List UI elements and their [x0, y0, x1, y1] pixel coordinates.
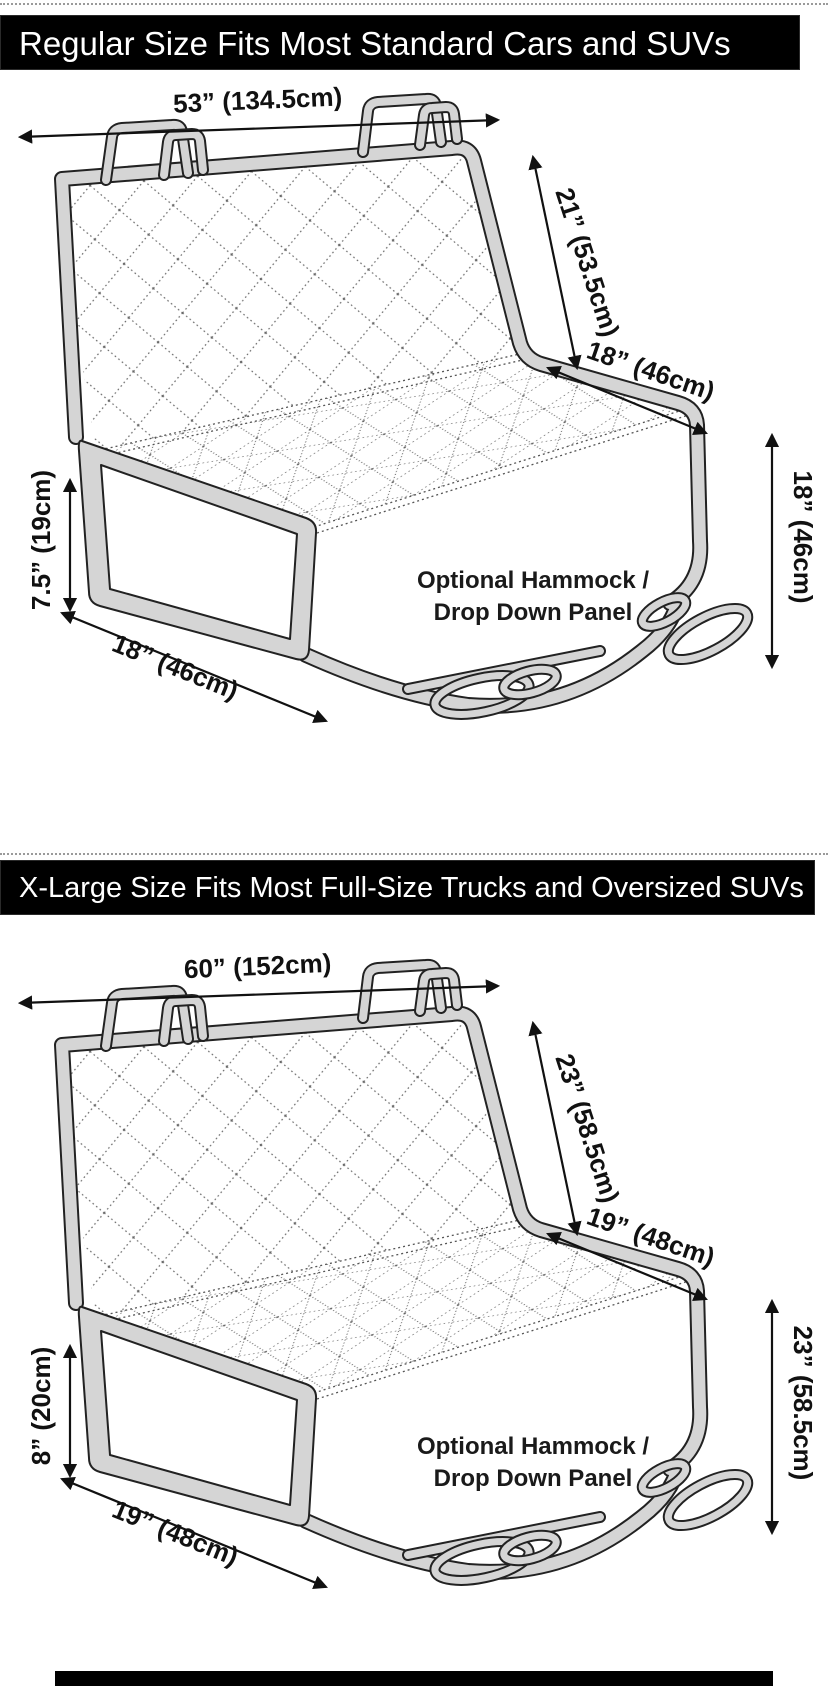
regular-hammock-label-line1: Optional Hammock /	[417, 567, 649, 594]
xlarge-hammock-label-line2: Drop Down Panel	[434, 1465, 633, 1492]
product-dimension-page: Regular Size Fits Most Standard Cars and…	[0, 0, 828, 1686]
seat-cover-illustration	[20, 965, 772, 1588]
regular-back-height-label: 21” (53.5cm)	[549, 184, 625, 340]
xlarge-size-banner: X-Large Size Fits Most Full-Size Trucks …	[0, 860, 815, 915]
regular-top-width-label: 53” (134.5cm)	[172, 85, 342, 119]
xlarge-drop-height-label: 23” (58.5cm)	[788, 1326, 818, 1481]
xlarge-back-height-label: 23” (58.5cm)	[549, 1050, 625, 1206]
xlarge-size-diagram: 60” (152cm) 23” (58.5cm) 19” (48cm) 23” …	[0, 951, 828, 1641]
regular-drop-height-label: 18” (46cm)	[788, 471, 818, 604]
xlarge-top-width-label: 60” (152cm)	[183, 951, 332, 984]
regular-hammock-label-line2: Drop Down Panel	[434, 599, 633, 626]
top-separator-line	[0, 3, 828, 5]
seat-cover-illustration	[20, 99, 772, 722]
middle-separator-line	[0, 853, 828, 855]
regular-flap-height-label: 7.5” (19cm)	[26, 470, 56, 610]
xlarge-flap-height-label: 8” (20cm)	[26, 1347, 56, 1466]
regular-size-banner: Regular Size Fits Most Standard Cars and…	[0, 15, 800, 70]
bottom-cropped-banner	[55, 1671, 773, 1686]
xlarge-hammock-label-line1: Optional Hammock /	[417, 1433, 649, 1460]
regular-size-diagram: 53” (134.5cm) 21” (53.5cm) 18” (46cm) 18…	[0, 85, 828, 775]
